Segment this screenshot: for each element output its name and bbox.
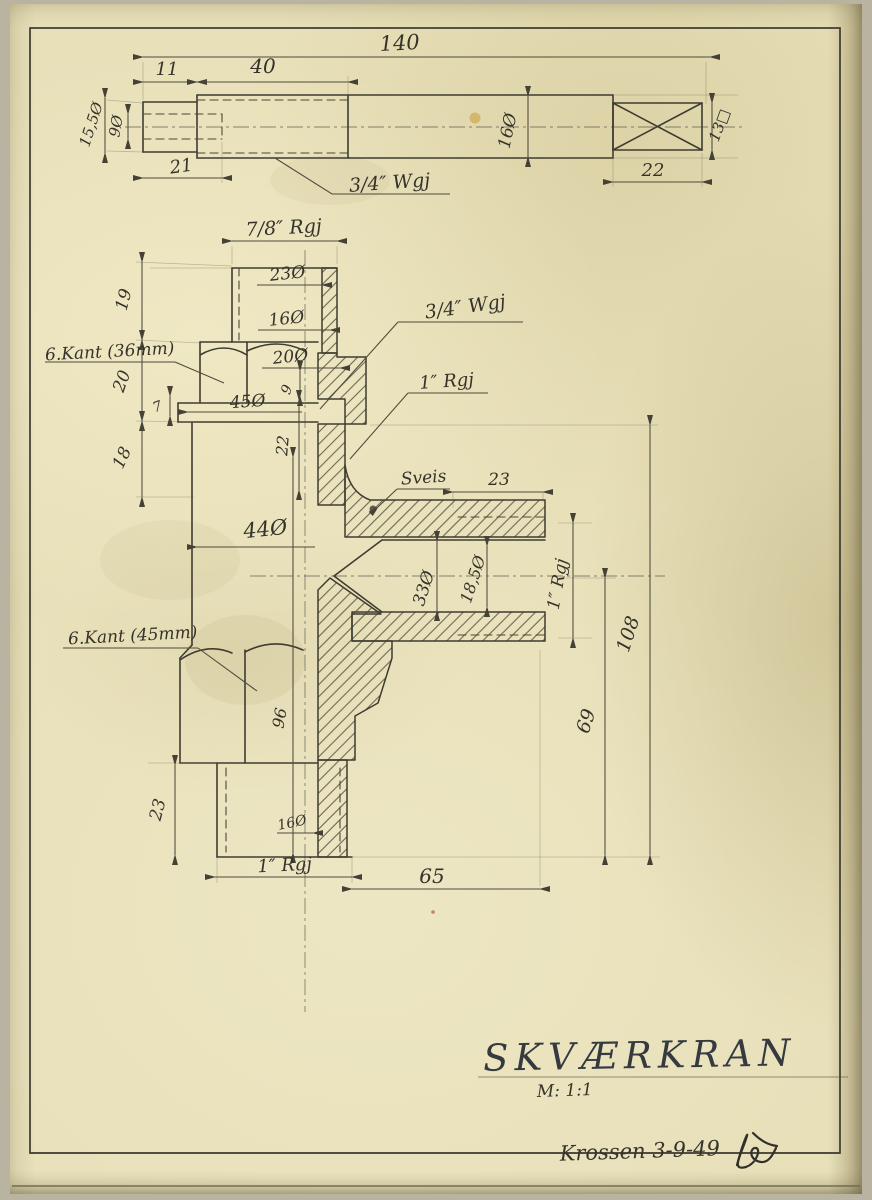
dim-outlet-len: 23 bbox=[145, 797, 170, 824]
title-block: SKVÆRKRAN M: 1:1 Krossen 3-9-49 bbox=[478, 1031, 848, 1167]
main-section-view: 7/8″ Rgj 23Ø 16Ø 20Ø 9 45Ø 7 19 20 18 22… bbox=[45, 215, 665, 1012]
label-hex-small: 6.Kant (36mm) bbox=[45, 339, 175, 366]
dim-bore-depth: 22 bbox=[272, 435, 293, 458]
label-hex-large: 6.Kant (45mm) bbox=[68, 623, 198, 650]
dim-square-22: 22 bbox=[641, 160, 665, 181]
dim-stub-155: 15,5Ø bbox=[76, 99, 107, 149]
dim-body-dia: 44Ø bbox=[241, 515, 289, 544]
scanned-drawing-page: 140 11 40 21 22 16Ø 15,5Ø 9Ø 13□ 3/4″ Wg… bbox=[0, 0, 872, 1200]
spindle-hidden-lines bbox=[143, 100, 348, 153]
dim-hole-9: 9Ø bbox=[105, 113, 127, 138]
dim-hex-h: 20 bbox=[109, 368, 136, 396]
dim-neck-h: 18 bbox=[109, 444, 136, 472]
dim-bore-len: 96 bbox=[268, 706, 290, 729]
dim-h-center: 69 bbox=[572, 706, 600, 736]
weld-bead bbox=[370, 506, 377, 513]
dim-h-total: 108 bbox=[612, 614, 644, 655]
dim-outlet-thread: 1″ Rgj bbox=[257, 854, 313, 878]
dim-stem-base: 20Ø bbox=[271, 345, 311, 369]
label-wgj-top: 3/4″ Wgj bbox=[348, 169, 431, 197]
dim-stem-mid: 16Ø bbox=[268, 307, 307, 331]
label-rgj-upper: 1″ Rgj bbox=[419, 369, 475, 394]
dim-offset-65: 65 bbox=[419, 864, 444, 888]
label-stem-thread: 7/8″ Rgj bbox=[245, 215, 322, 241]
dim-step-9: 9 bbox=[278, 383, 296, 397]
dim-rod-16: 16Ø bbox=[495, 110, 522, 150]
dim-thread-40: 40 bbox=[249, 54, 276, 78]
dim-hole-21: 21 bbox=[167, 155, 194, 179]
label-wgj-main: 3/4″ Wgj bbox=[423, 290, 507, 323]
dim-outlet-bore: 16Ø bbox=[276, 812, 308, 834]
drawing-canvas: 140 11 40 21 22 16Ø 15,5Ø 9Ø 13□ 3/4″ Wg… bbox=[0, 0, 872, 1200]
dim-stem-len: 19 bbox=[112, 286, 137, 312]
dim-spout-thread: 1″ Rgj bbox=[544, 556, 573, 611]
dim-overall-140: 140 bbox=[379, 30, 420, 56]
border-frame bbox=[12, 28, 860, 1186]
signature-monogram bbox=[737, 1133, 777, 1168]
dim-flange-thk: 7 bbox=[151, 398, 165, 416]
spindle-outline bbox=[143, 95, 702, 158]
dim-spout-bore: 18,5Ø bbox=[456, 552, 489, 605]
dim-spout-thread-len: 23 bbox=[487, 470, 510, 490]
drawing-title: SKVÆRKRAN bbox=[483, 1031, 797, 1079]
top-view-spindle: 140 11 40 21 22 16Ø 15,5Ø 9Ø 13□ 3/4″ Wg… bbox=[76, 30, 742, 197]
dim-square-13: 13□ bbox=[705, 107, 733, 144]
dim-stem-od: 23Ø bbox=[268, 262, 308, 286]
red-speck bbox=[431, 910, 435, 914]
signature-text: Krossen 3-9-49 bbox=[558, 1136, 720, 1166]
dim-stub-11: 11 bbox=[156, 59, 179, 80]
dim-spout-od: 33Ø bbox=[409, 567, 439, 608]
ink-stain bbox=[470, 113, 481, 124]
label-weld: Sveis bbox=[400, 466, 447, 489]
drawing-scale: M: 1:1 bbox=[535, 1080, 593, 1102]
dim-flange-dia: 45Ø bbox=[228, 391, 267, 414]
